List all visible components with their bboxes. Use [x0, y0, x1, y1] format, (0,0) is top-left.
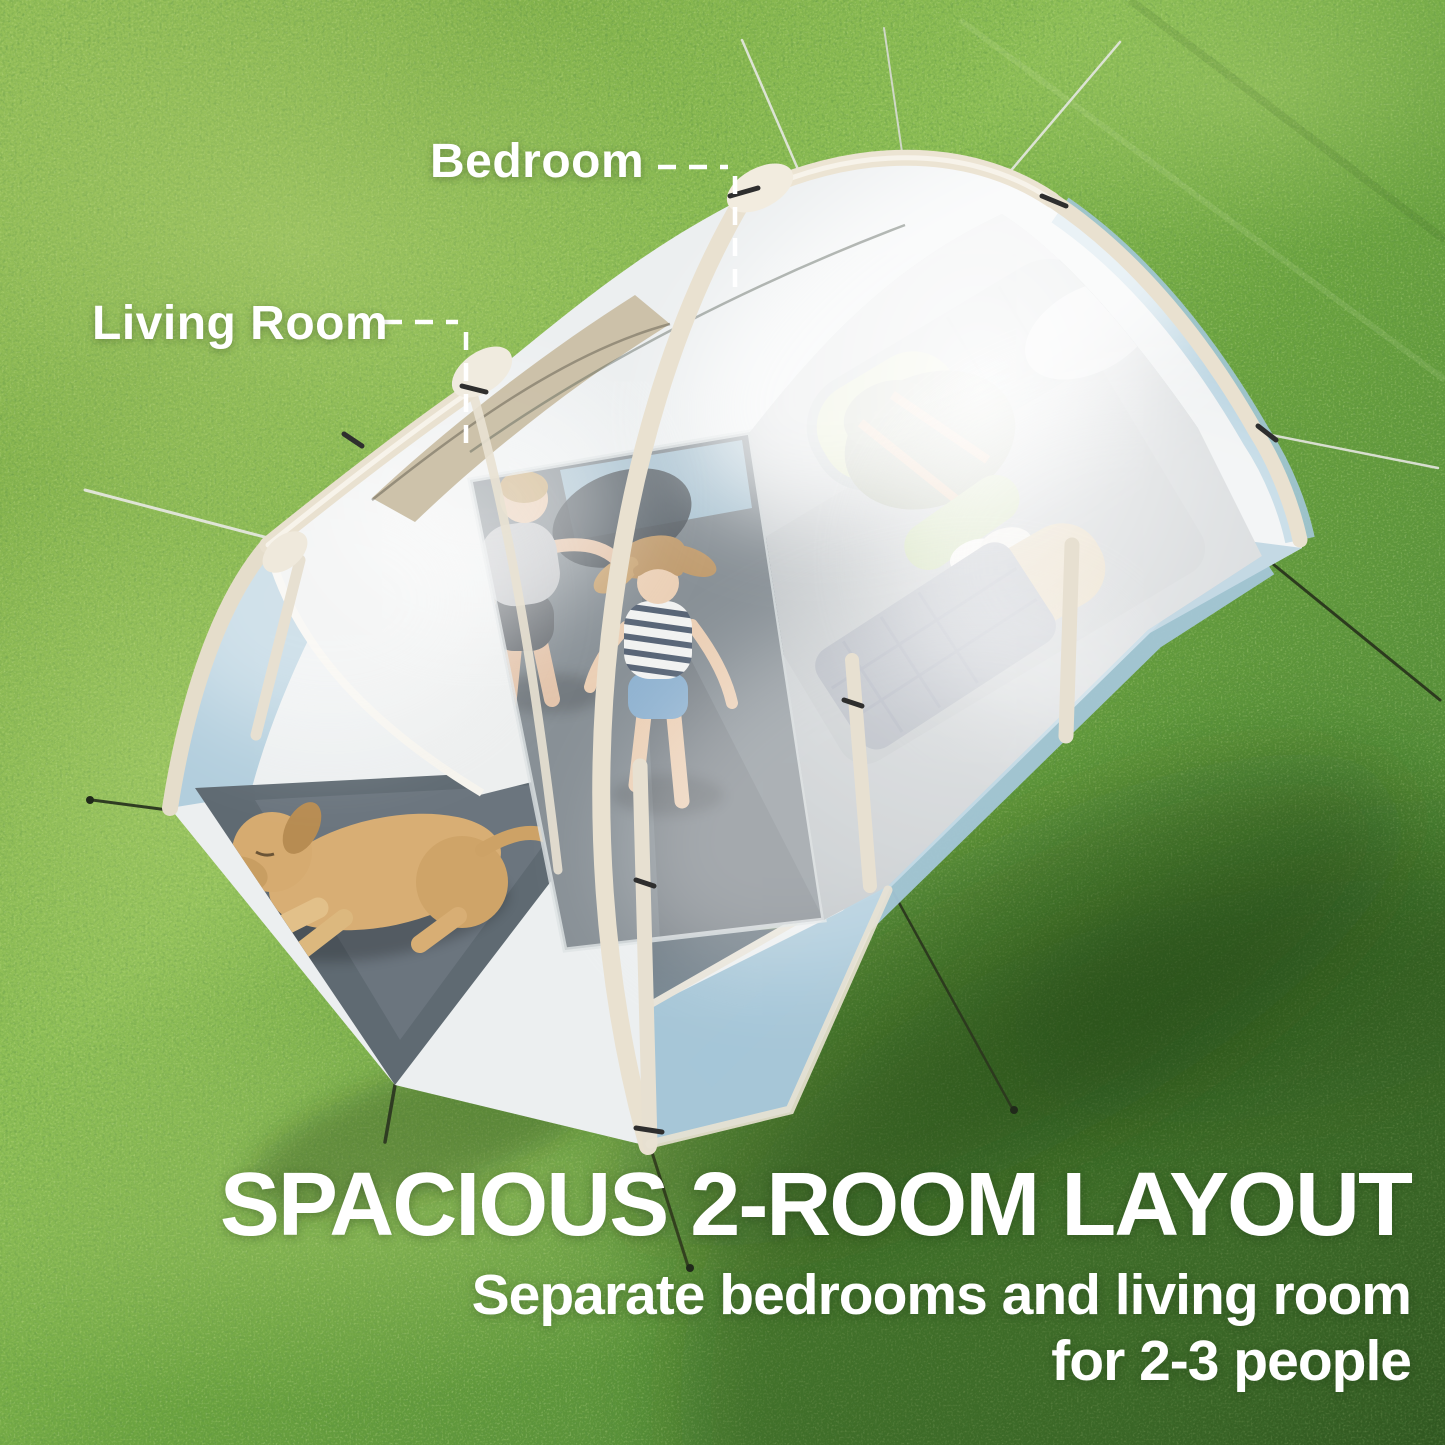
entrance-pole	[640, 766, 650, 1144]
tent-stake	[86, 796, 94, 804]
rear-right-pole	[1066, 545, 1072, 736]
caption-headline: SPACIOUS 2-ROOM LAYOUT	[220, 1160, 1411, 1250]
bedroom-label: Bedroom	[430, 134, 644, 189]
caption-block: SPACIOUS 2-ROOM LAYOUT Separate bedrooms…	[220, 1160, 1411, 1394]
product-image: Bedroom Living Room SPACIOUS 2-ROOM LAYO…	[0, 0, 1445, 1445]
caption-subline-2: for 2-3 people	[220, 1330, 1411, 1394]
caption-subline-1: Separate bedrooms and living room	[220, 1264, 1411, 1328]
living-room-label: Living Room	[92, 296, 388, 351]
tent-stake	[1010, 1106, 1018, 1114]
